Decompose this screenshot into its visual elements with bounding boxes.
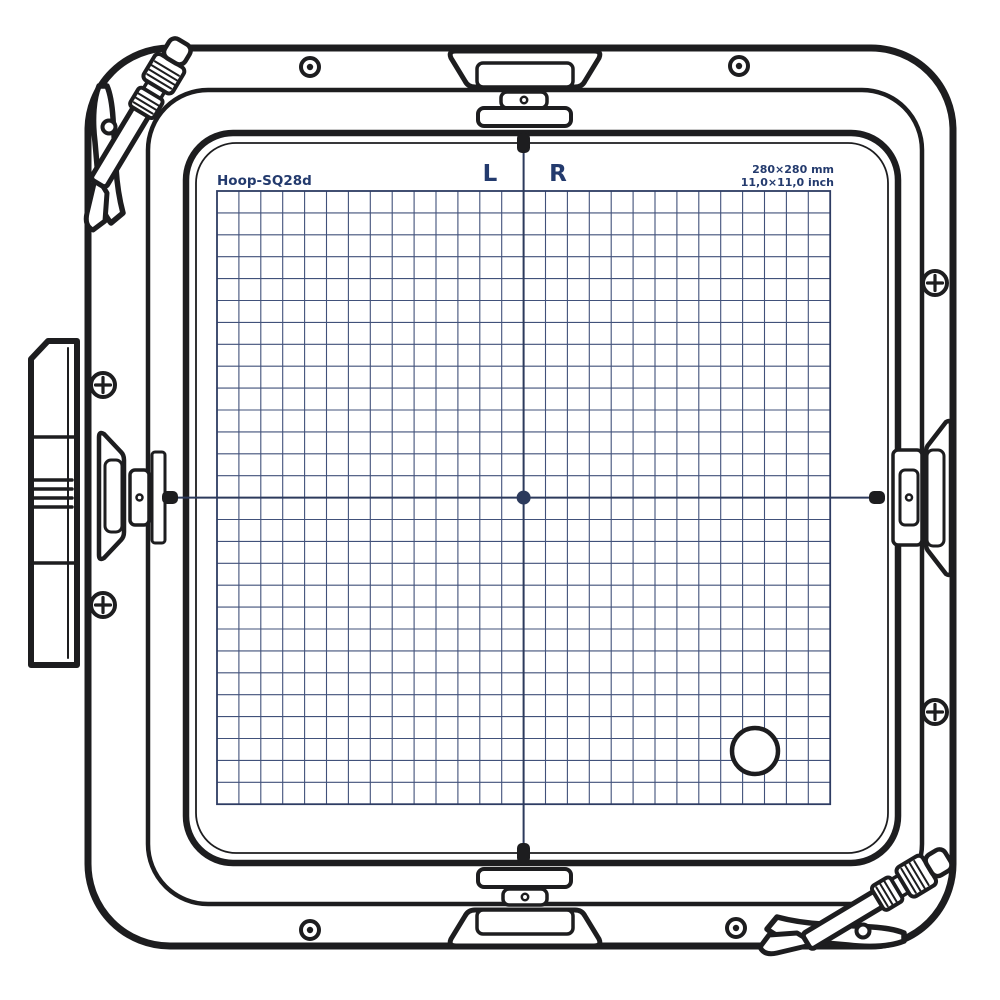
tab-top <box>478 92 571 126</box>
hoop-model-label: Hoop-SQ28d <box>217 173 312 189</box>
notch-top <box>517 133 530 153</box>
screw-left-lower <box>91 593 115 617</box>
machine-attachment-bracket <box>31 341 77 665</box>
screw-top-left <box>301 58 319 76</box>
size-imperial-label: 11,0×11,0 inch <box>741 176 834 189</box>
handle-bottom <box>450 910 600 946</box>
notch-left <box>162 491 178 504</box>
tab-right <box>893 450 922 545</box>
hoop-illustration: Hoop-SQ28d L R 280×280 mm 11,0×11,0 inch <box>0 0 1000 1000</box>
right-side-label: R <box>549 161 567 187</box>
handle-top <box>450 51 600 87</box>
screw-bottom-right <box>727 919 745 937</box>
center-point <box>517 491 531 505</box>
left-side-label: L <box>483 161 498 187</box>
notch-bottom <box>517 843 530 863</box>
template-hole <box>732 728 778 774</box>
tab-bottom <box>478 869 571 905</box>
screw-bottom-left <box>301 921 319 939</box>
clamp-top-left <box>83 33 197 230</box>
screw-right-upper <box>923 271 947 295</box>
size-metric-label: 280×280 mm <box>752 163 834 176</box>
handle-left <box>99 433 124 559</box>
screw-right-lower <box>923 700 947 724</box>
handle-right <box>926 421 951 575</box>
screw-top-right <box>730 57 748 75</box>
notch-right <box>869 491 885 504</box>
screw-left-upper <box>91 373 115 397</box>
hoop-technical-drawing: Hoop-SQ28d L R 280×280 mm 11,0×11,0 inch <box>0 0 1000 1000</box>
